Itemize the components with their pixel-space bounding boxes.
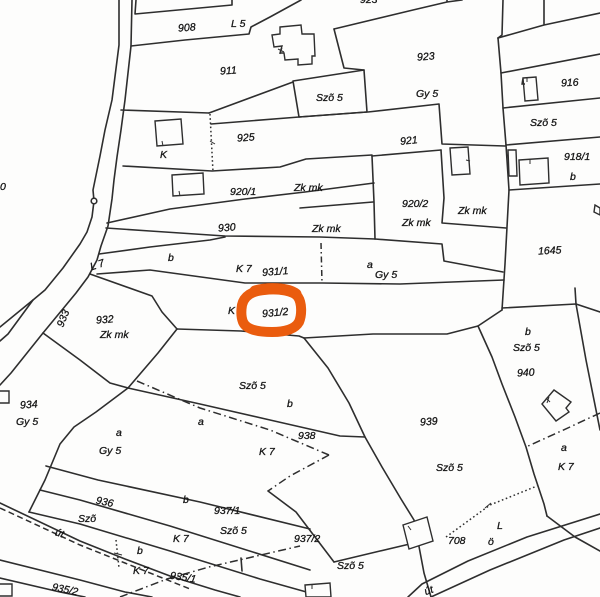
svg-text:K: K	[160, 149, 168, 161]
svg-text:916: 916	[561, 77, 579, 90]
svg-text:b: b	[137, 545, 143, 557]
svg-text:1645: 1645	[538, 244, 562, 257]
svg-text:Gy 5: Gy 5	[375, 269, 397, 281]
svg-text:a: a	[116, 427, 122, 439]
svg-text:K 7: K 7	[259, 446, 276, 458]
svg-text:Zk mk: Zk mk	[293, 182, 323, 194]
svg-text:908: 908	[178, 21, 196, 34]
svg-text:K 7: K 7	[173, 533, 190, 545]
svg-text:Szõ 5: Szõ 5	[220, 525, 247, 537]
svg-text:Szõ 5: Szõ 5	[239, 380, 266, 392]
svg-text:Zk mk: Zk mk	[311, 223, 341, 235]
svg-text:923: 923	[417, 50, 435, 63]
svg-text:Szõ 5: Szõ 5	[316, 92, 343, 104]
svg-text:L 5: L 5	[231, 18, 246, 30]
svg-text:a: a	[198, 416, 204, 428]
svg-text:Szõ 5: Szõ 5	[513, 342, 540, 354]
svg-text:932: 932	[96, 313, 114, 326]
svg-text:K 7: K 7	[558, 461, 575, 473]
svg-text:K 7: K 7	[236, 263, 253, 275]
svg-text:b: b	[525, 326, 531, 338]
svg-text:931/1: 931/1	[262, 265, 289, 279]
svg-text:b: b	[168, 252, 174, 264]
svg-text:ö: ö	[488, 536, 494, 548]
svg-text:b: b	[287, 398, 293, 410]
svg-text:939: 939	[420, 415, 438, 428]
svg-text:b: b	[570, 171, 576, 183]
svg-text:0: 0	[0, 181, 6, 193]
svg-text:934: 934	[20, 398, 38, 411]
svg-text:930: 930	[218, 221, 236, 234]
svg-text:a: a	[367, 259, 373, 271]
svg-text:937/2: 937/2	[294, 533, 320, 545]
svg-text:940: 940	[517, 367, 535, 380]
svg-text:Zk mk: Zk mk	[99, 329, 129, 341]
svg-text:Szõ: Szõ	[78, 513, 96, 525]
svg-text:937/1: 937/1	[214, 505, 240, 517]
svg-text:K: K	[228, 305, 236, 317]
svg-text:911: 911	[220, 64, 238, 77]
svg-text:K 7: K 7	[133, 565, 150, 577]
svg-text:a: a	[561, 442, 567, 454]
svg-text:708: 708	[448, 535, 466, 547]
svg-text:Szõ 5: Szõ 5	[436, 462, 463, 474]
svg-text:Gy 5: Gy 5	[16, 416, 38, 428]
svg-text:Gy 5: Gy 5	[99, 445, 121, 457]
svg-text:Zk mk: Zk mk	[457, 205, 487, 217]
svg-text:Szõ 5: Szõ 5	[530, 117, 557, 129]
svg-text:b: b	[183, 494, 189, 506]
svg-text:921: 921	[400, 134, 419, 148]
svg-text:920/2: 920/2	[402, 198, 428, 210]
svg-text:918/1: 918/1	[564, 151, 590, 163]
svg-text:Gy 5: Gy 5	[416, 88, 438, 100]
svg-text:938: 938	[298, 430, 316, 442]
svg-text:931/2: 931/2	[262, 306, 289, 320]
svg-text:920/1: 920/1	[230, 186, 256, 198]
svg-text:Szõ 5: Szõ 5	[337, 560, 364, 572]
svg-text:923: 923	[360, 0, 378, 6]
svg-text:925: 925	[237, 131, 255, 144]
svg-text:L: L	[497, 520, 503, 532]
svg-text:Zk mk: Zk mk	[401, 217, 431, 229]
